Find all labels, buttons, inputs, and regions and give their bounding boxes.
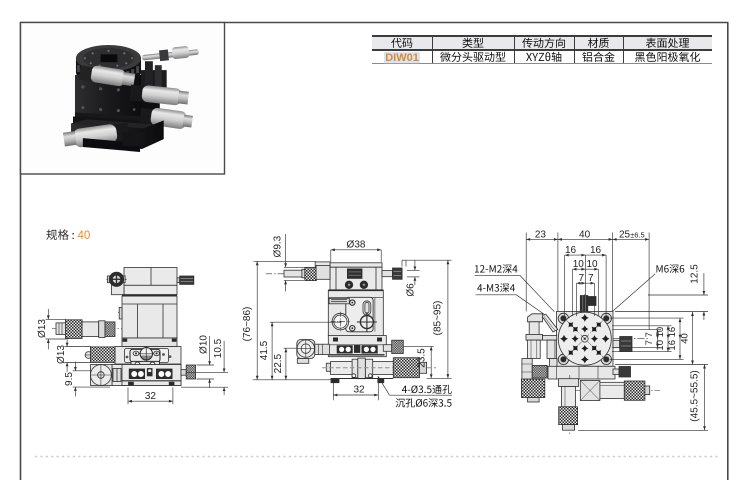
svg-text:16: 16: [590, 245, 602, 256]
svg-text:25±6.5: 25±6.5: [619, 230, 645, 241]
svg-text:16 16: 16 16: [667, 327, 678, 351]
svg-text:Ø13: Ø13: [37, 319, 48, 338]
svg-text:Ø6: Ø6: [406, 283, 417, 297]
svg-text:(85~95): (85~95): [432, 301, 443, 336]
svg-text:Ø38: Ø38: [347, 240, 366, 251]
svg-text:40: 40: [579, 230, 591, 241]
svg-text:DIW01: DIW01: [385, 52, 419, 64]
svg-text:(76~86): (76~86): [242, 307, 253, 342]
svg-text:23: 23: [535, 230, 547, 241]
svg-text:22.5: 22.5: [273, 353, 284, 373]
svg-text:(45.5~55.5): (45.5~55.5): [690, 370, 701, 421]
svg-text:16: 16: [565, 245, 577, 256]
svg-text:10 10: 10 10: [655, 327, 666, 351]
svg-text:40: 40: [78, 230, 91, 242]
svg-text:Ø13: Ø13: [56, 345, 67, 364]
svg-text:Ø10: Ø10: [198, 335, 209, 354]
svg-text:7: 7: [588, 273, 594, 284]
svg-text:41.5: 41.5: [259, 340, 270, 360]
svg-text:7 7: 7 7: [644, 332, 655, 345]
svg-text:10.5: 10.5: [213, 338, 224, 358]
svg-text:23.5: 23.5: [417, 348, 428, 368]
svg-text:7: 7: [579, 273, 585, 284]
svg-text:Ø9.3: Ø9.3: [272, 235, 283, 257]
svg-text:40: 40: [680, 333, 691, 344]
svg-text:9.5: 9.5: [64, 372, 75, 386]
svg-text:10: 10: [573, 259, 585, 270]
svg-text:12.5: 12.5: [690, 264, 701, 284]
svg-text:10: 10: [586, 259, 598, 270]
svg-text:32: 32: [353, 384, 365, 395]
svg-text:32: 32: [145, 391, 157, 402]
